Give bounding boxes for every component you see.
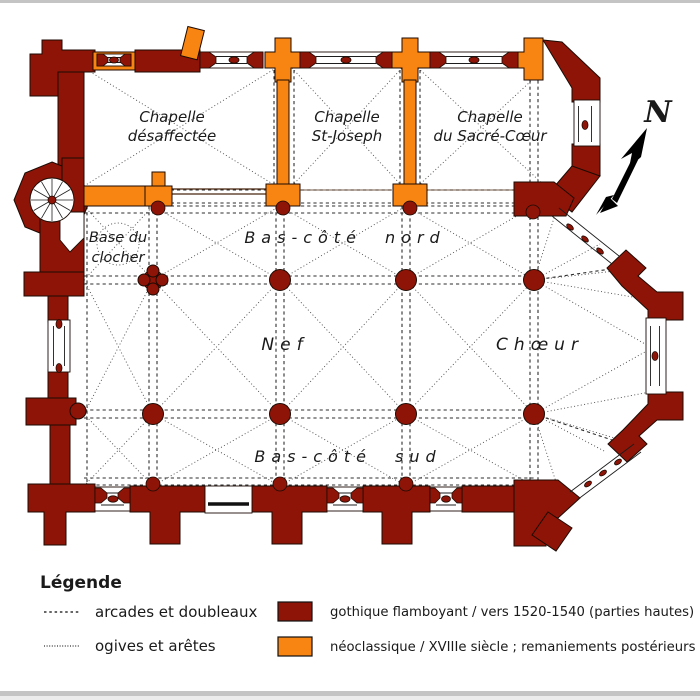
top-frame-bar <box>0 0 700 3</box>
legend-swatch-neoclassic <box>278 637 312 656</box>
bottom-frame-shadow <box>0 696 700 700</box>
legend: Légende arcades et doubleaux ogives et a… <box>40 573 696 656</box>
label-chapelle-desaffectee-line2: désaffectée <box>128 127 216 145</box>
south-door-opening <box>205 486 252 513</box>
label-chapelle-st-joseph-line1: Chapelle <box>314 108 380 126</box>
label-nef: Nef <box>261 335 308 355</box>
church-floor-plan: Chapelle désaffectée Chapelle St-Joseph … <box>0 0 700 700</box>
legend-item-gothic: gothique flamboyant / vers 1520-1540 (pa… <box>330 605 694 620</box>
plan-svg: Chapelle désaffectée Chapelle St-Joseph … <box>0 0 700 700</box>
label-bas-cote-sud: Bas-côté sud <box>254 447 441 466</box>
label-base-du-clocher-line1: Base du <box>89 230 147 246</box>
legend-swatch-gothic <box>278 602 312 621</box>
compass-needle <box>596 128 647 215</box>
north-compass-icon: N <box>596 95 673 215</box>
label-chapelle-st-joseph-line2: St-Joseph <box>312 127 383 145</box>
compass-north-label: N <box>643 95 673 130</box>
legend-title: Légende <box>40 573 122 593</box>
bottom-frame-bar <box>0 691 700 696</box>
legend-item-arcades: arcades et doubleaux <box>95 603 258 621</box>
label-chapelle-sacre-coeur-line1: Chapelle <box>457 108 523 126</box>
label-choeur: Chœur <box>496 335 584 355</box>
label-chapelle-sacre-coeur-line2: du Sacré-Cœur <box>433 127 547 145</box>
chapel-railings <box>172 189 518 194</box>
stair-newel-post <box>48 196 56 204</box>
legend-item-neoclassic: néoclassique / XVIIIe siècle ; remanieme… <box>330 639 696 655</box>
legend-item-ogives: ogives et arêtes <box>95 637 216 655</box>
label-chapelle-desaffectee-line1: Chapelle <box>139 108 205 126</box>
label-base-du-clocher-line2: clocher <box>92 250 146 266</box>
label-bas-cote-nord: Bas-côté nord <box>244 228 445 247</box>
